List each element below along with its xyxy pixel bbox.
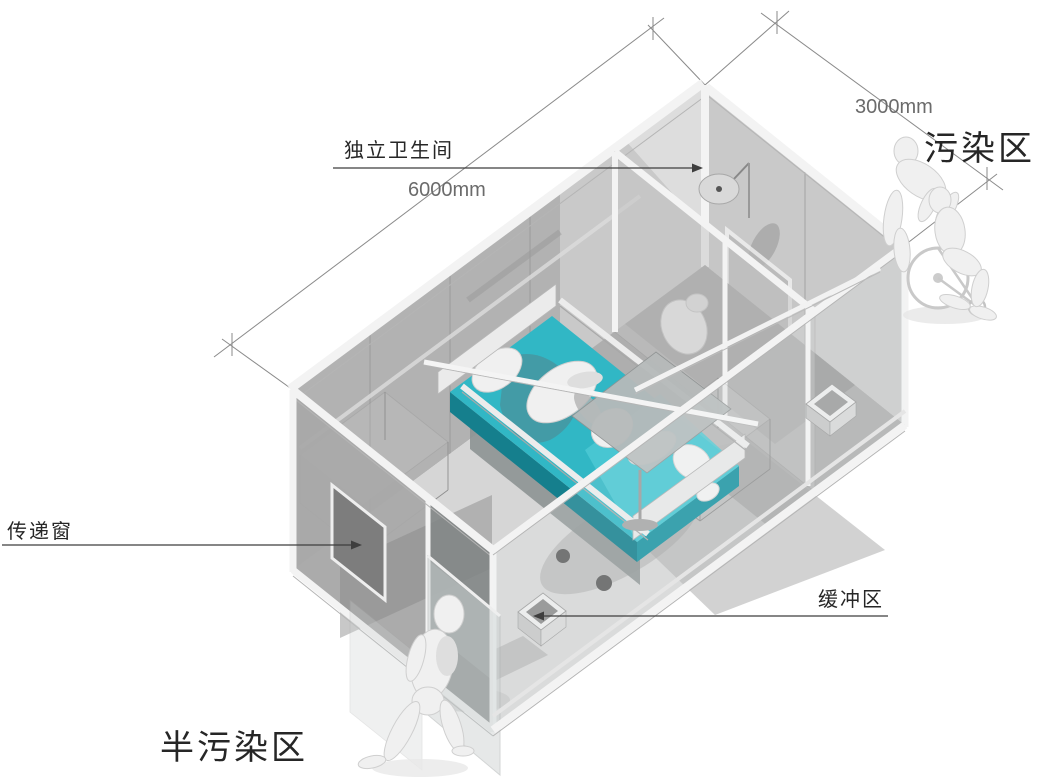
dimension-length-label: 6000mm (408, 179, 486, 201)
transfer-window-label: 传递窗 (7, 520, 73, 543)
dimension-width-label: 3000mm (855, 96, 933, 118)
isolation-ward-axonometric-diagram: 6000mm 3000mm (0, 0, 1050, 779)
buffer-zone-label: 缓冲区 (818, 588, 884, 611)
bathroom-label: 独立卫生间 (344, 139, 454, 162)
semi-contaminated-zone-label: 半污染区 (160, 729, 308, 767)
contaminated-zone-label: 污染区 (924, 130, 1035, 168)
